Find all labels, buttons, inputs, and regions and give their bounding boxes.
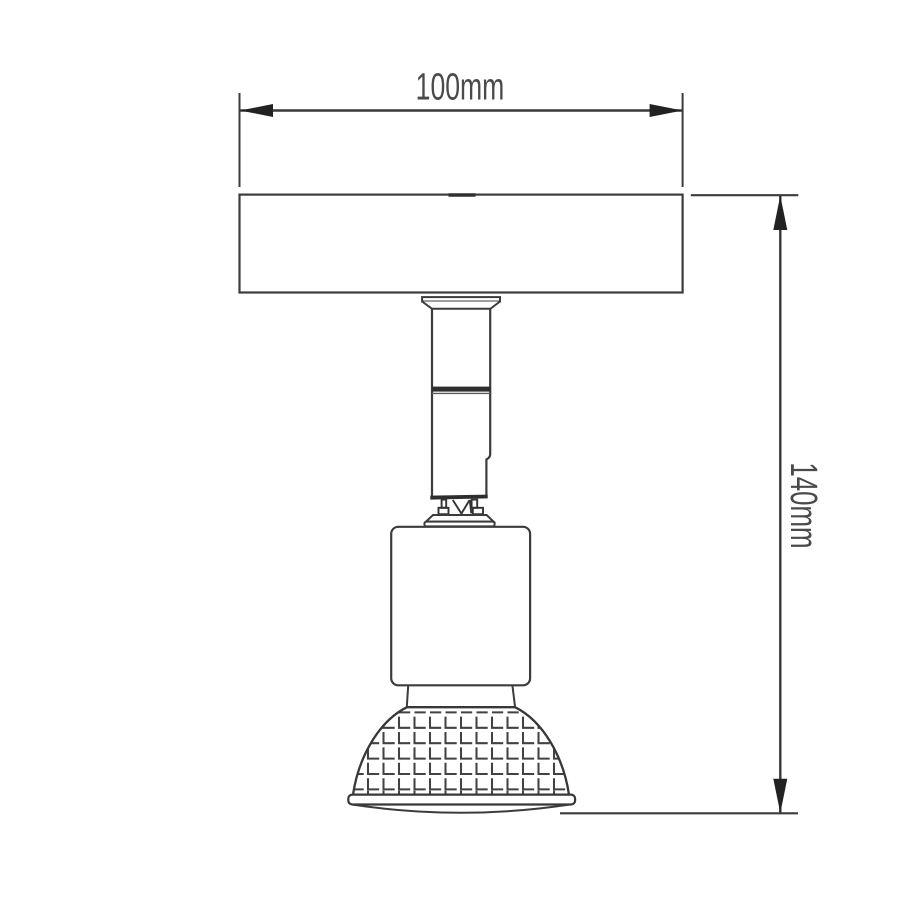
svg-text:140mm: 140mm [783,462,825,548]
svg-text:100mm: 100mm [416,65,505,108]
